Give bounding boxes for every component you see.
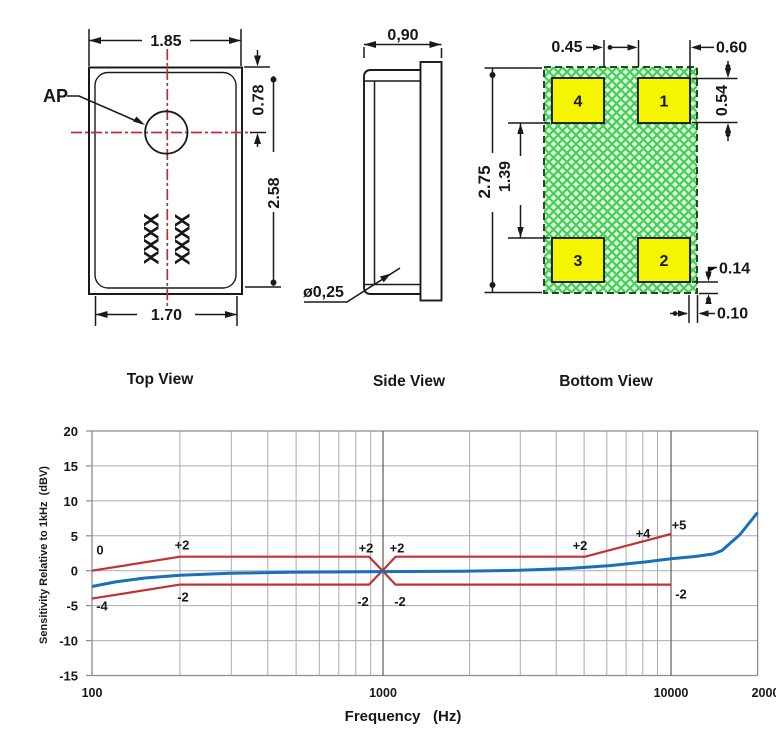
svg-text:Sensitivity Relative to 1kHz: Sensitivity Relative to 1kHz (dBV): [38, 466, 50, 644]
svg-text:Frequency (Hz): Frequency (Hz): [345, 708, 462, 725]
svg-text:Bottom View: Bottom View: [559, 373, 654, 390]
svg-text:0: 0: [96, 543, 103, 558]
svg-text:-5: -5: [66, 599, 78, 614]
svg-text:AP: AP: [43, 86, 68, 106]
svg-text:+2: +2: [359, 541, 374, 556]
svg-text:XXXX: XXXX: [141, 213, 164, 265]
svg-text:4: 4: [574, 94, 583, 111]
svg-text:+2: +2: [390, 541, 405, 556]
svg-text:1.85: 1.85: [150, 33, 181, 50]
svg-text:-15: -15: [59, 669, 78, 684]
svg-text:0.60: 0.60: [716, 40, 747, 57]
svg-text:-2: -2: [357, 594, 369, 609]
svg-text:+5: +5: [672, 518, 687, 533]
svg-text:-10: -10: [59, 634, 78, 649]
svg-text:15: 15: [64, 459, 78, 474]
svg-text:100: 100: [82, 686, 103, 700]
svg-text:1000: 1000: [369, 686, 397, 700]
svg-text:Top View: Top View: [127, 371, 195, 388]
svg-text:+2: +2: [573, 538, 588, 553]
svg-text:0,90: 0,90: [387, 27, 418, 44]
svg-text:0.14: 0.14: [719, 261, 750, 278]
svg-text:+4: +4: [636, 526, 652, 541]
svg-text:2.75: 2.75: [475, 165, 494, 198]
svg-text:10000: 10000: [654, 686, 689, 700]
svg-text:5: 5: [71, 529, 78, 544]
svg-text:-2: -2: [394, 594, 406, 609]
svg-text:2: 2: [660, 253, 669, 270]
svg-text:Side View: Side View: [373, 373, 446, 390]
svg-text:0.54: 0.54: [714, 85, 731, 116]
svg-text:0.45: 0.45: [551, 39, 582, 56]
svg-text:3: 3: [574, 253, 583, 270]
svg-text:0.78: 0.78: [251, 84, 268, 115]
svg-text:1: 1: [660, 94, 669, 111]
svg-text:-4: -4: [96, 599, 108, 614]
svg-text:+2: +2: [175, 538, 190, 553]
svg-text:1.39: 1.39: [497, 161, 514, 192]
svg-text:10: 10: [64, 494, 78, 509]
svg-text:XXXX: XXXX: [172, 213, 195, 265]
svg-text:-2: -2: [675, 587, 687, 602]
svg-text:2.58: 2.58: [266, 177, 283, 208]
svg-text:0.10: 0.10: [717, 306, 748, 323]
svg-text:20: 20: [64, 424, 78, 439]
svg-text:0: 0: [71, 564, 78, 579]
svg-text:-2: -2: [177, 590, 189, 605]
svg-text:1.70: 1.70: [151, 307, 182, 324]
svg-text:20000: 20000: [752, 686, 776, 700]
svg-text:ø0,25: ø0,25: [303, 284, 344, 301]
